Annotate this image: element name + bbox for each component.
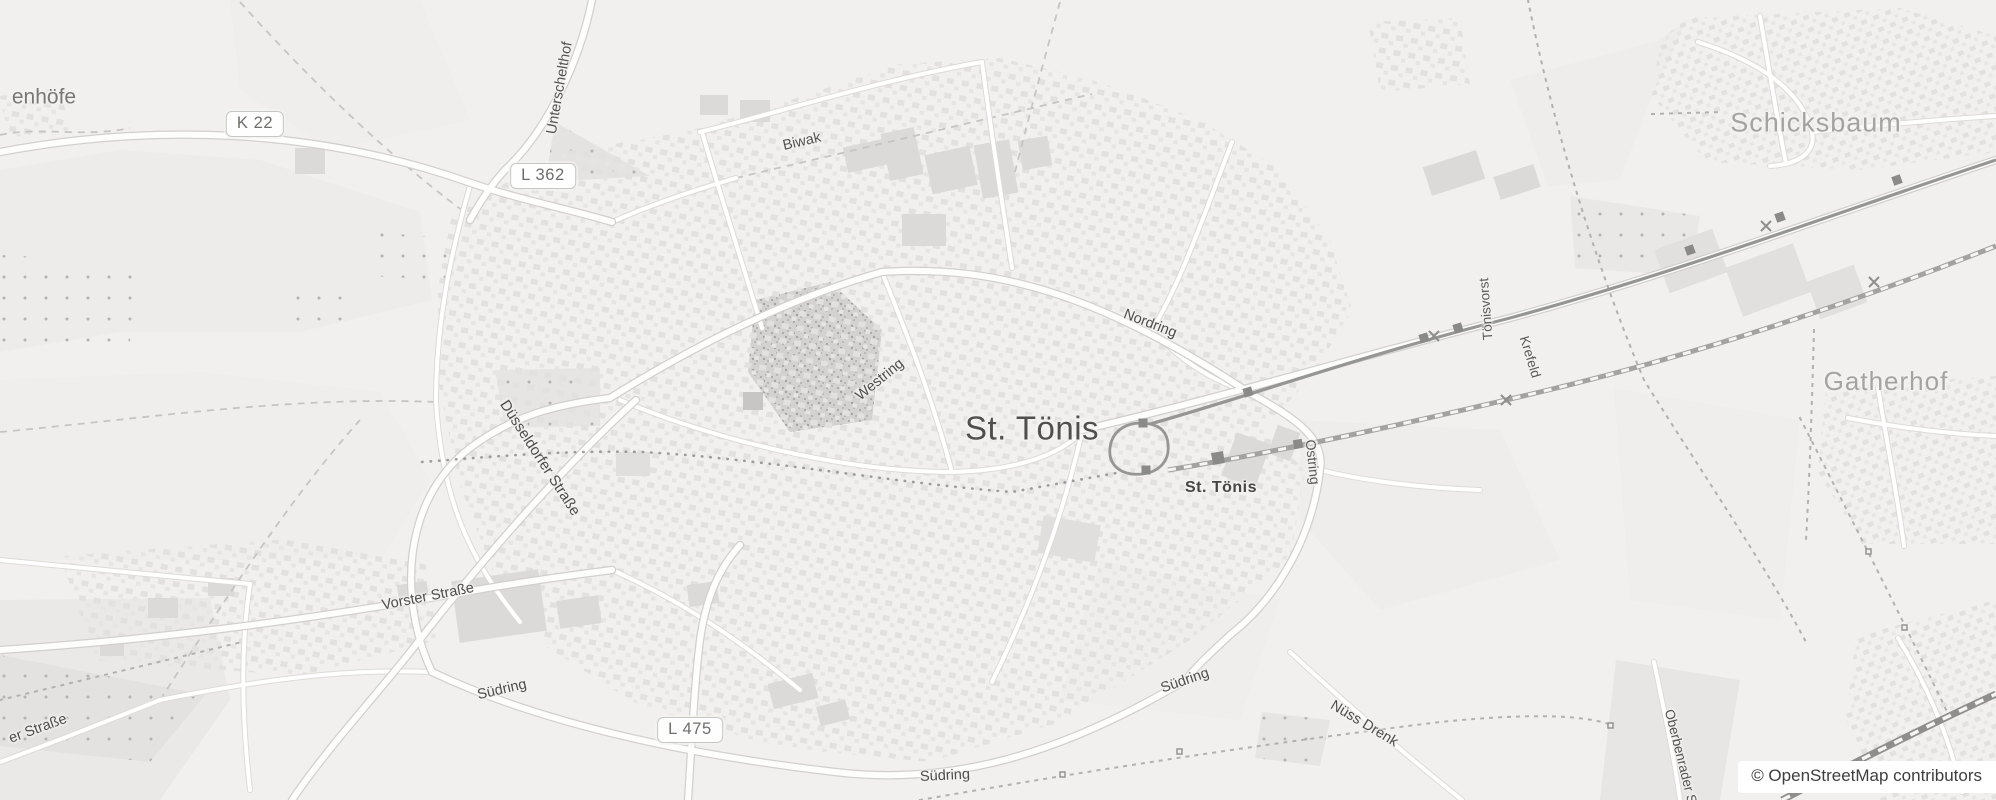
station-label-st-toenis: St. Tönis bbox=[1185, 480, 1257, 496]
place-label-gatherhof: Gatherhof bbox=[1824, 368, 1949, 394]
map-graphics bbox=[0, 0, 1996, 800]
road-shield-k22: K 22 bbox=[226, 111, 284, 137]
map-canvas[interactable]: enhöfeSchicksbaumSt. TönisGatherhofSt. T… bbox=[0, 0, 1996, 800]
place-label-enhoefe: enhöfe bbox=[12, 87, 76, 108]
place-label-schicksbaum: Schicksbaum bbox=[1730, 110, 1902, 137]
road-shield-l475: L 475 bbox=[657, 717, 723, 743]
place-label-st-toenis: St. Tönis bbox=[965, 412, 1099, 445]
road-label-suedring-sued: Südring bbox=[920, 767, 971, 784]
osm-attribution[interactable]: © OpenStreetMap contributors bbox=[1738, 761, 1996, 793]
road-shield-l362: L 362 bbox=[510, 163, 576, 189]
